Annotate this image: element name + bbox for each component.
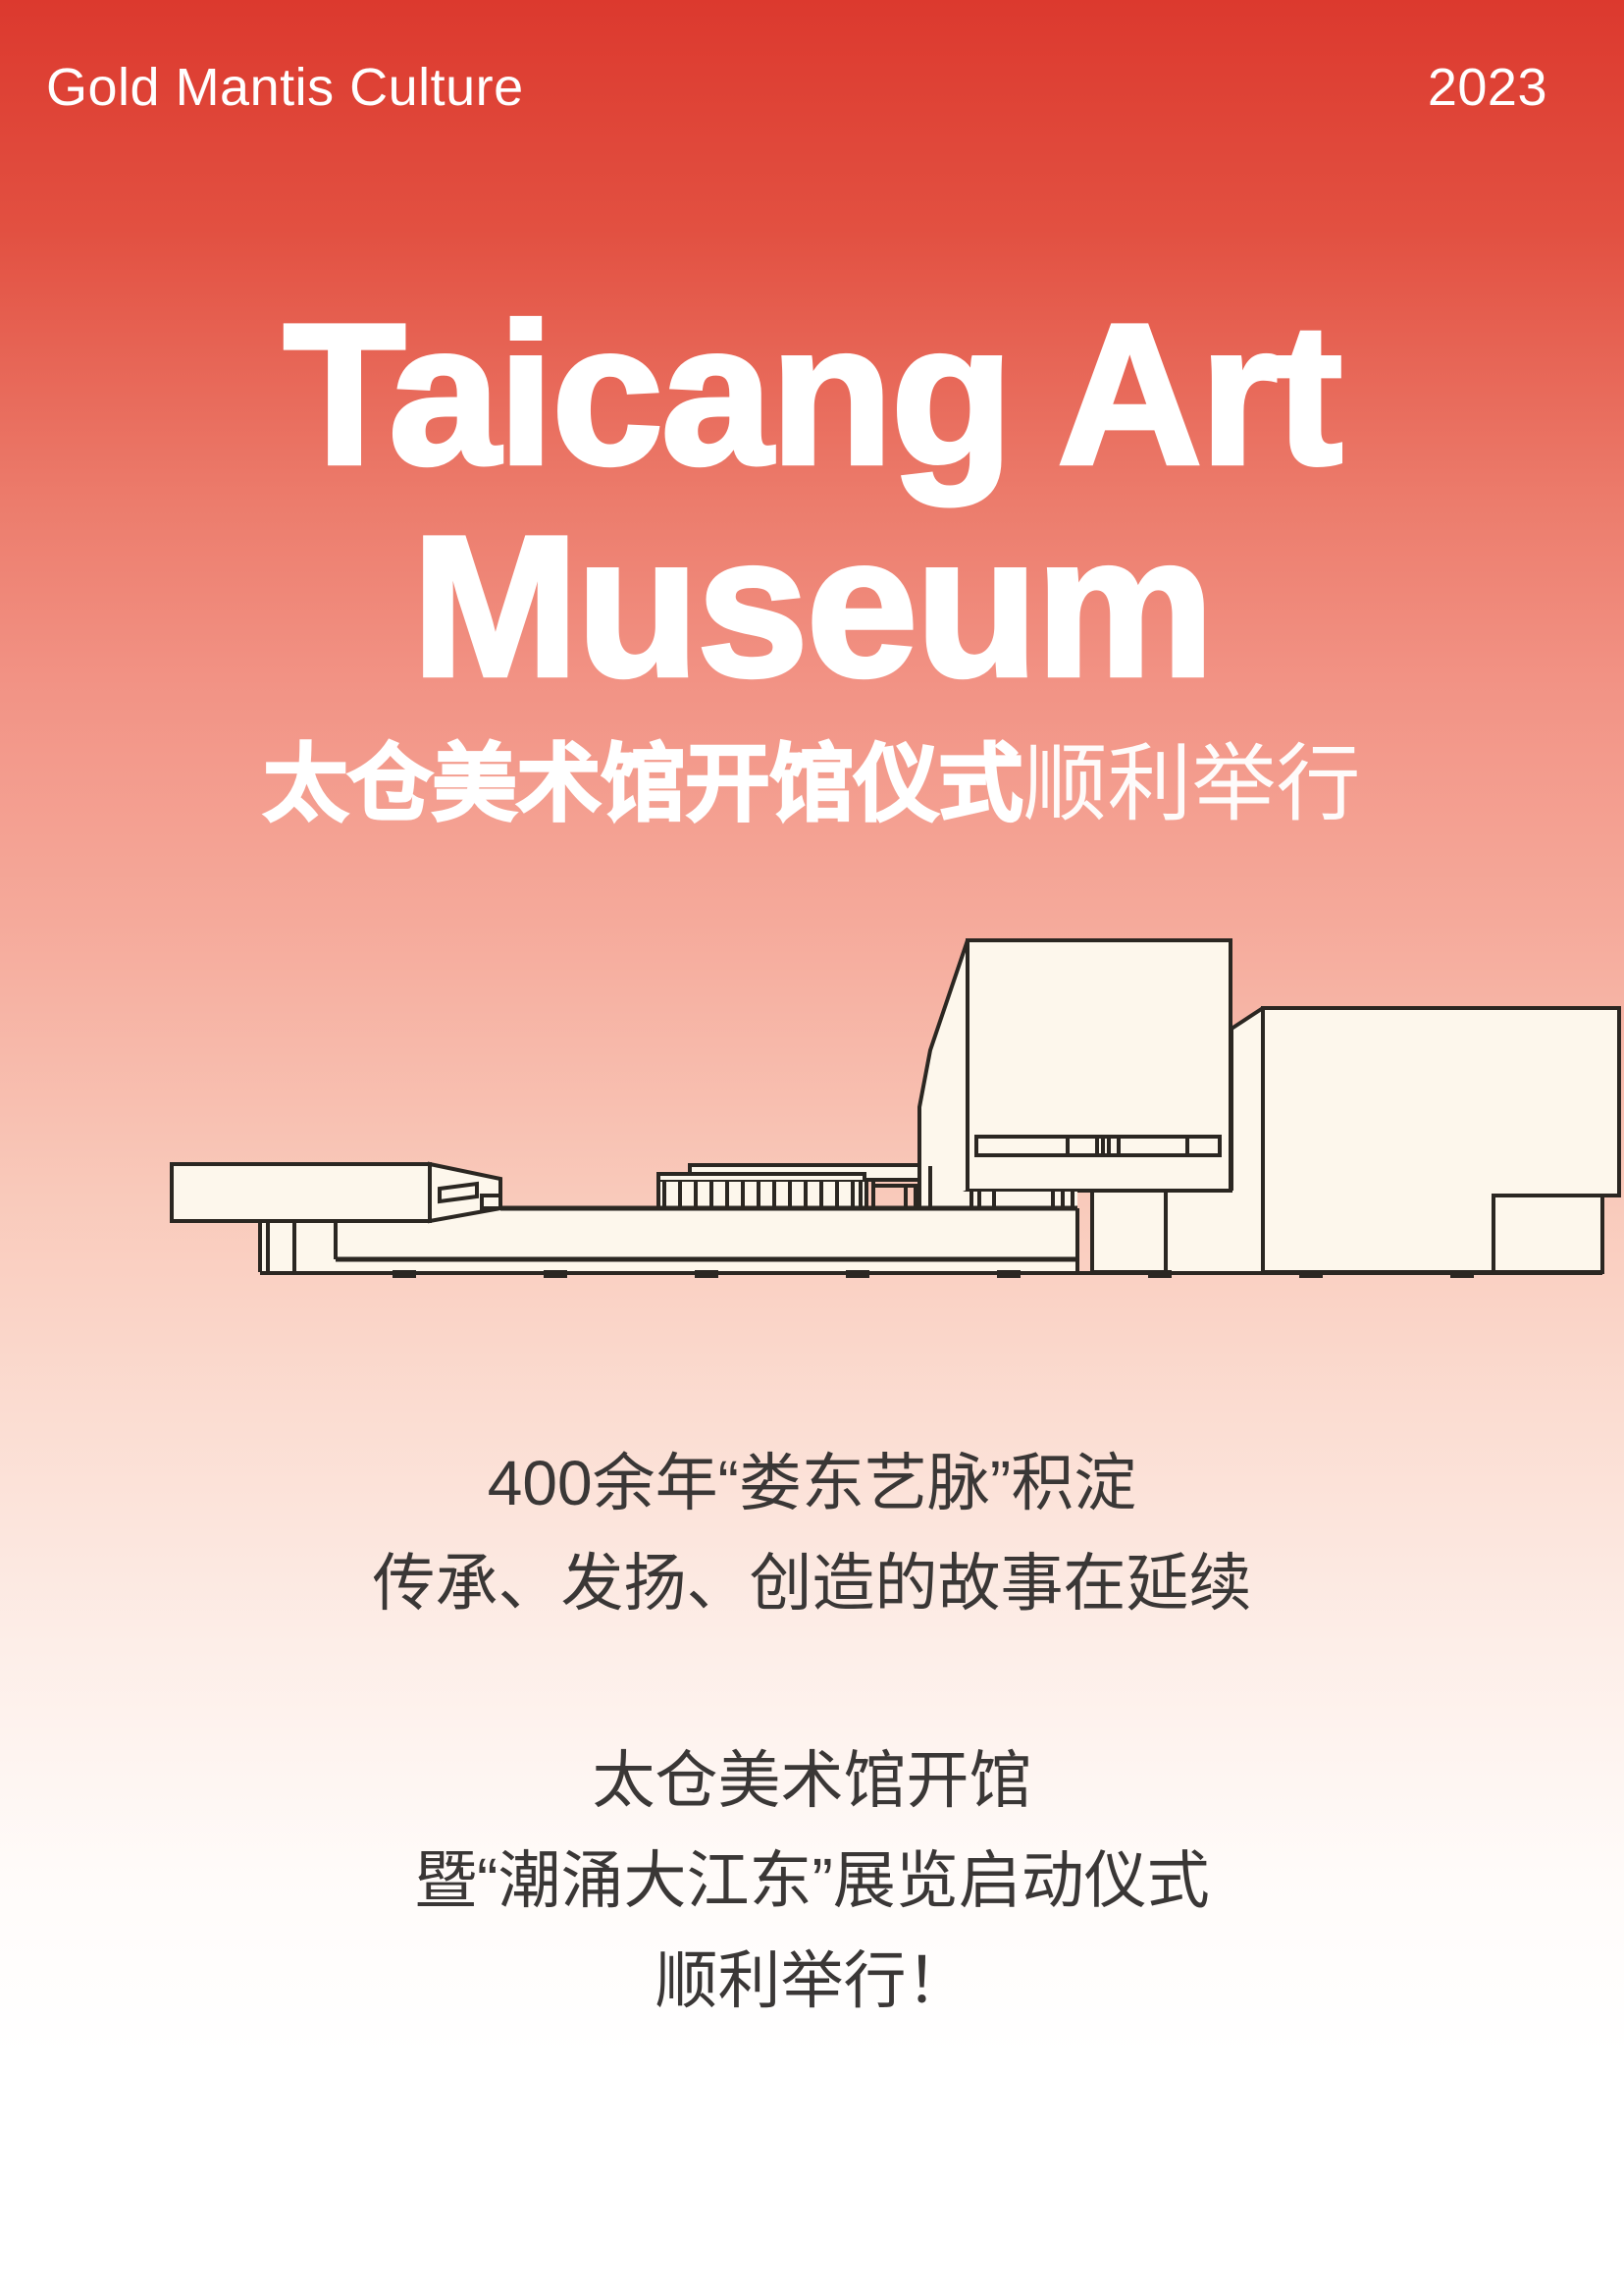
intro-line-2: 传承、发扬、创造的故事在延续 — [0, 1533, 1624, 1633]
announcement-paragraph: 太仓美术馆开馆 暨“潮涌大江东”展览启动仪式 顺利举行！ — [0, 1730, 1624, 2031]
announcement-line-1: 太仓美术馆开馆 — [0, 1730, 1624, 1831]
intro-line-1: 400余年“娄东艺脉”积淀 — [0, 1433, 1624, 1533]
announcement-line-3: 顺利举行！ — [0, 1931, 1624, 2031]
intro-paragraph: 400余年“娄东艺脉”积淀 传承、发扬、创造的故事在延续 — [0, 1433, 1624, 1633]
announcement-line-2: 暨“潮涌大江东”展览启动仪式 — [0, 1831, 1624, 1931]
poster: Gold Mantis Culture 2023 Taicang Art Mus… — [0, 0, 1624, 2286]
